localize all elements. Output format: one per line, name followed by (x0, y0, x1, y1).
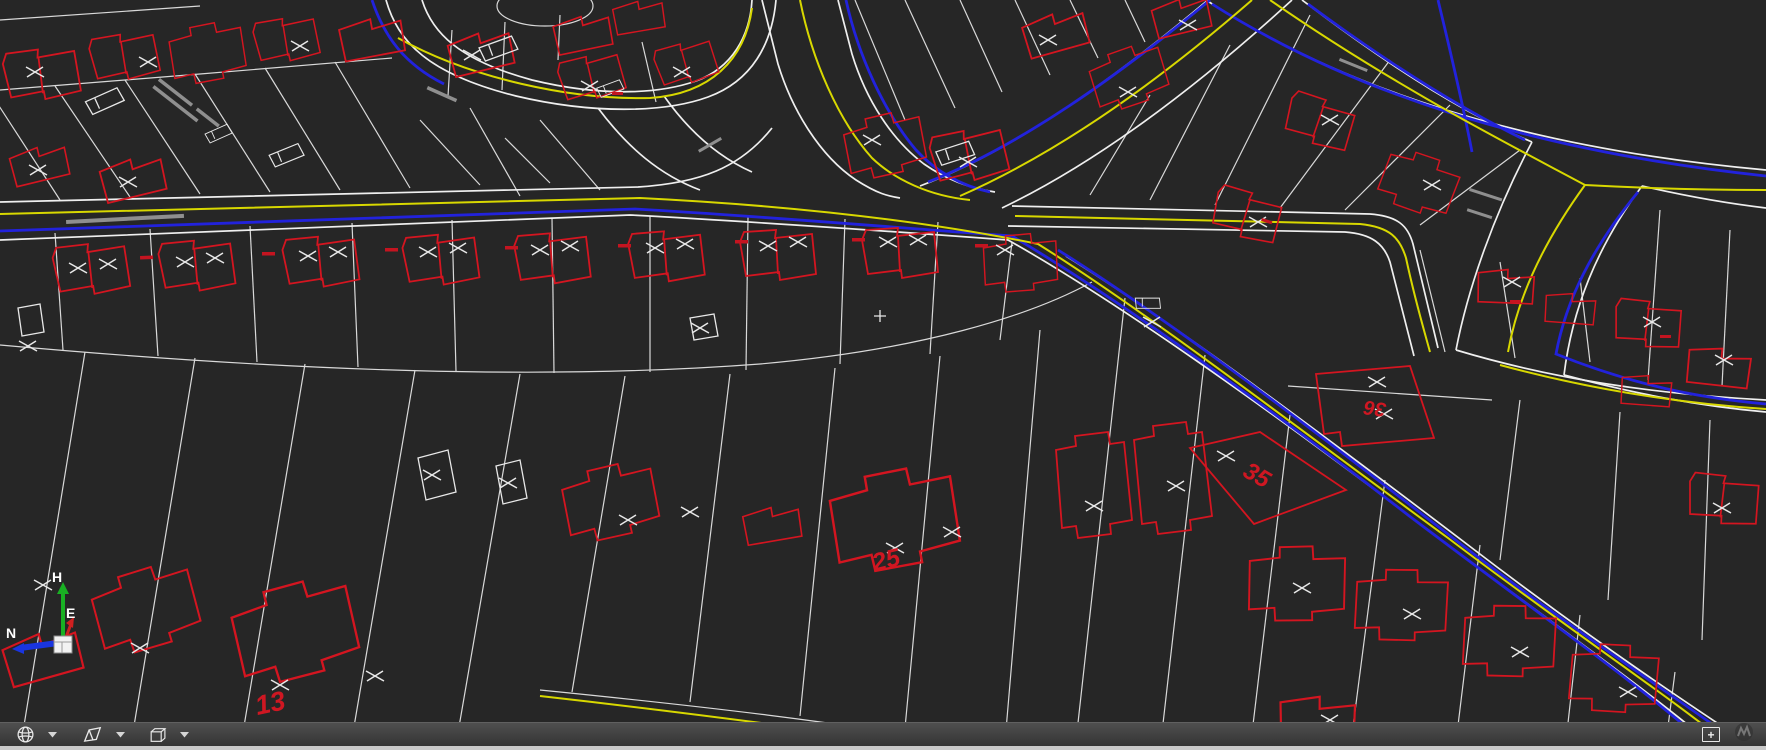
lot-number-label: 25 (868, 543, 904, 577)
lot-number-label: 35 (1238, 457, 1275, 494)
axis-e-label: E (66, 605, 75, 621)
chevron-down-icon (116, 732, 125, 738)
lot-number-labels: 13 25 35 36 (252, 395, 1387, 721)
view-toolbar: + (0, 722, 1766, 746)
window-edge-strip (0, 746, 1766, 750)
cube-icon (148, 726, 167, 744)
display-style-dropdown[interactable] (176, 725, 192, 745)
axis-n-label: N (6, 625, 16, 641)
chevron-down-icon (180, 732, 189, 738)
app-logo-icon (1734, 722, 1754, 747)
globe-icon (16, 725, 35, 744)
drawing-viewport[interactable]: 13 25 35 36 H E N (0, 0, 1766, 750)
lot-number-label: 36 (1362, 395, 1388, 420)
utility-blue-lines (0, 0, 1766, 750)
clip-volume-dropdown[interactable] (112, 725, 128, 745)
orbit-globe-tool-button[interactable] (12, 725, 38, 745)
orbit-tool-dropdown[interactable] (44, 725, 60, 745)
add-view-button[interactable]: + (1702, 727, 1720, 742)
clip-volume-tool-button[interactable] (80, 725, 106, 745)
small-red-number-marks (140, 92, 1671, 338)
display-style-cube-button[interactable] (144, 725, 170, 745)
building-outlines (1, 0, 1763, 749)
chevron-down-icon (48, 732, 57, 738)
clip-volume-icon (83, 726, 103, 744)
application-window: 13 25 35 36 H E N (0, 0, 1766, 750)
plus-icon: + (1707, 729, 1714, 741)
axis-h-label: H (52, 569, 62, 585)
road-edge-lines (0, 0, 1766, 750)
road-centerlines (0, 0, 1766, 750)
lot-number-label: 13 (252, 685, 288, 721)
map-drawing: 13 25 35 36 H E N (0, 0, 1766, 750)
